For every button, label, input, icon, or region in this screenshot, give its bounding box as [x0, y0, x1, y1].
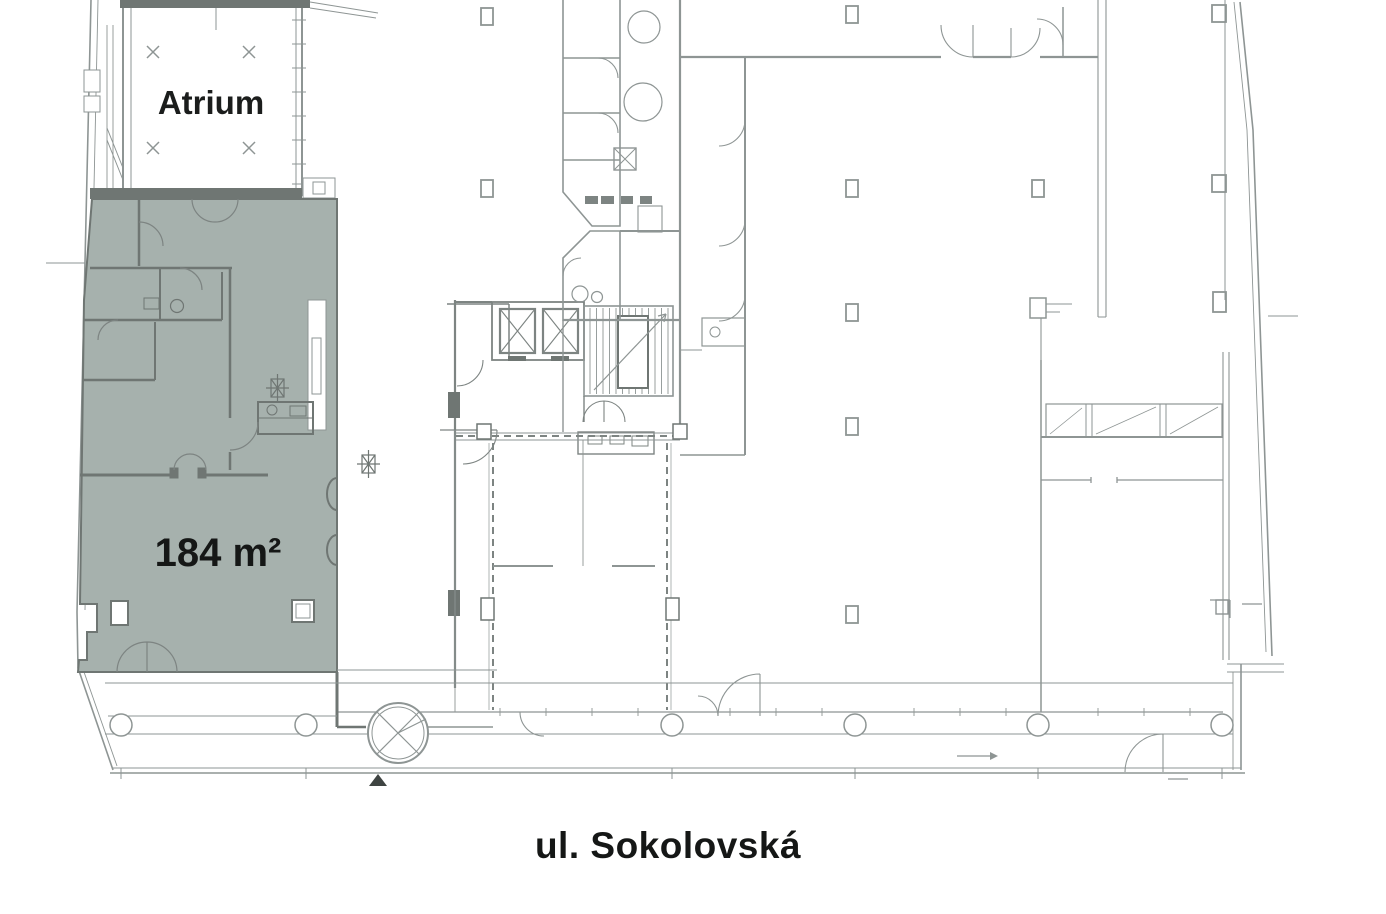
arcade-walkway: [105, 683, 1233, 779]
floor-plan-drawing: Atrium: [0, 0, 1386, 914]
column-markers: [481, 5, 1226, 623]
colonnade-columns: [110, 714, 1233, 736]
atrium-room: Atrium: [84, 0, 378, 199]
core-vestibule: [578, 396, 654, 454]
column-marker-hatched: [357, 450, 380, 478]
revolving-door: [368, 703, 428, 763]
right-wing: [1030, 298, 1262, 712]
wc-fixture: [628, 11, 660, 43]
entrance-arrow: [369, 774, 387, 786]
direction-arrow: [990, 752, 998, 760]
storefront-shops: [337, 424, 1223, 772]
wall-niche: [303, 178, 335, 198]
wc-fixture: [624, 83, 662, 121]
unit-area-label: 184 m²: [155, 531, 282, 575]
wall-block: [448, 590, 460, 616]
atrium-top-wall: [120, 0, 310, 8]
elevator-stair-core: [440, 300, 673, 688]
highlighted-unit: 184 m²: [78, 199, 337, 672]
atrium-label: Atrium: [158, 84, 264, 121]
floor-plan-page: Atrium: [0, 0, 1386, 914]
corridor-and-rooms: [680, 0, 1225, 455]
elevator-shafts: [492, 302, 584, 361]
wall-block: [448, 392, 460, 418]
pillar: [111, 601, 128, 625]
atrium-bottom-wall: [90, 188, 302, 199]
wc-fixture: [592, 292, 603, 303]
kitchenette-counter: [1046, 404, 1222, 437]
pillar: [292, 600, 314, 622]
street-label: ul. Sokolovská: [535, 825, 801, 866]
wc-fixture: [572, 286, 588, 302]
